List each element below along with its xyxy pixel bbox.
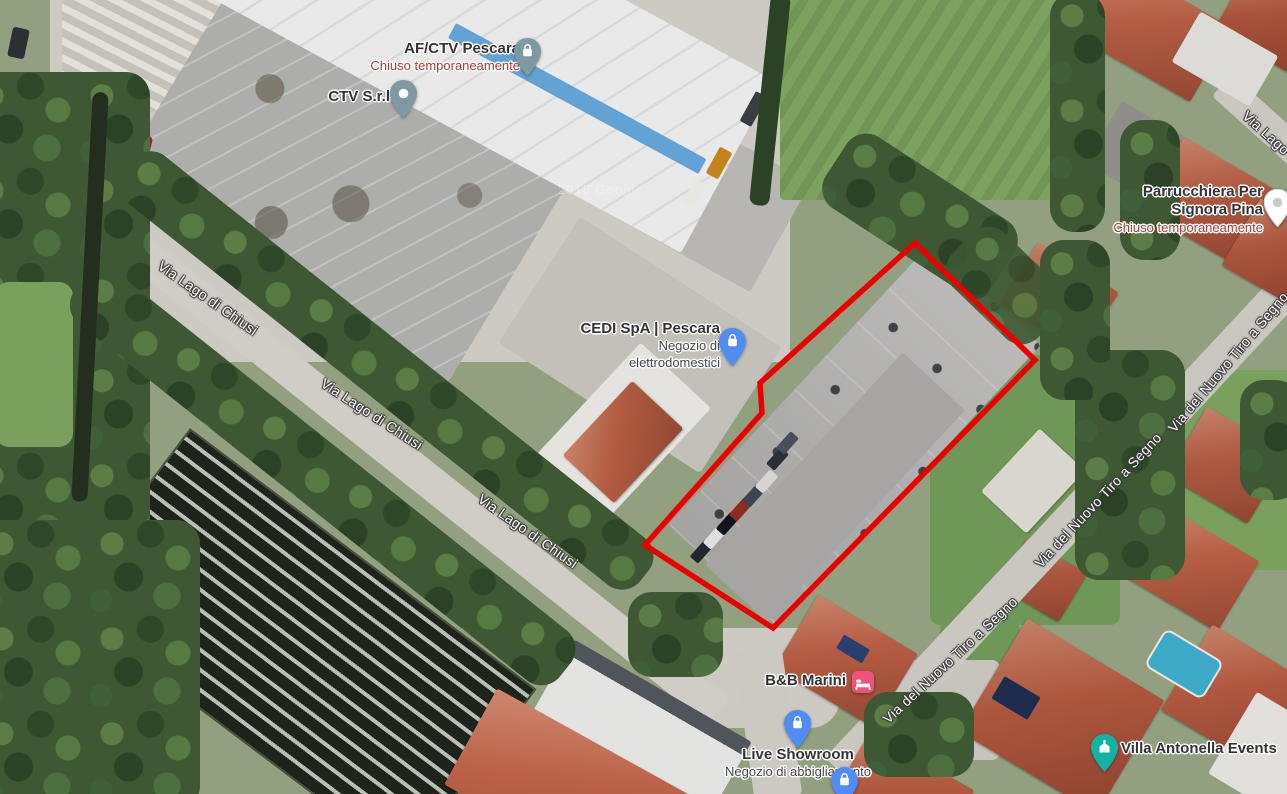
terrain-trees-left-lower (0, 520, 200, 794)
shopping-bag-pin-icon[interactable] (719, 328, 746, 366)
poi-villa-antonella[interactable]: Villa Antonella Events (1121, 740, 1281, 758)
poi-live-showroom-subtitle: Negozio di abbigliamento (688, 764, 908, 781)
poi-parrucchiera-name-1[interactable]: Parrucchiera Per (1085, 183, 1263, 201)
poi-live-showroom-name[interactable]: Live Showroom (688, 746, 908, 764)
dot-pin-icon[interactable] (1264, 189, 1287, 227)
satellite-basemap[interactable]: 2018 Google Via Lago di Chiusi Via Lago … (0, 0, 1287, 794)
poi-cedi-subtitle-1: Negozio di (540, 338, 720, 355)
poi-parrucchiera[interactable]: Parrucchiera Per Signora Pina Chiuso tem… (1085, 183, 1263, 236)
poi-bb-marini-name[interactable]: B&B Marini (736, 672, 846, 690)
poi-parrucchiera-name-2[interactable]: Signora Pina (1085, 201, 1263, 219)
terrain-trees-road-right-1 (1040, 240, 1110, 400)
terrain-car-dark (7, 27, 30, 60)
poi-afctv-pescara[interactable]: AF/CTV Pescara Chiuso temporaneamente (320, 40, 520, 75)
shopping-bag-pin-icon[interactable] (784, 710, 811, 748)
poi-parrucchiera-status: Chiuso temporaneamente (1085, 220, 1263, 237)
shopping-bag-pin-icon[interactable] (514, 38, 541, 76)
imagery-watermark: 2018 Google (558, 182, 643, 197)
poi-cedi-subtitle-2: elettrodomestici (540, 355, 720, 372)
poi-cedi-spa[interactable]: CEDI SpA | Pescara Negozio di elettrodom… (540, 320, 720, 372)
poi-villa-antonella-name[interactable]: Villa Antonella Events (1121, 740, 1281, 758)
dot-pin-icon[interactable] (390, 80, 417, 118)
terrain-trees-junction (628, 592, 723, 677)
poi-afctv-status: Chiuso temporaneamente (320, 58, 520, 75)
poi-ctv-srl[interactable]: CTV S.r.l (250, 88, 390, 106)
terrain-grass-left (0, 282, 73, 447)
poi-live-showroom[interactable]: Live Showroom Negozio di abbigliamento (688, 746, 908, 781)
poi-afctv-name[interactable]: AF/CTV Pescara (320, 40, 520, 58)
shopping-bag-pin-icon[interactable] (831, 767, 858, 794)
events-pin-icon[interactable] (1091, 734, 1118, 772)
poi-bb-marini[interactable]: B&B Marini (736, 672, 846, 690)
terrain-trees-right-strip (1240, 380, 1287, 500)
poi-ctv-name[interactable]: CTV S.r.l (250, 88, 390, 106)
poi-cedi-name[interactable]: CEDI SpA | Pescara (540, 320, 720, 338)
bed-badge-icon[interactable] (852, 671, 874, 693)
